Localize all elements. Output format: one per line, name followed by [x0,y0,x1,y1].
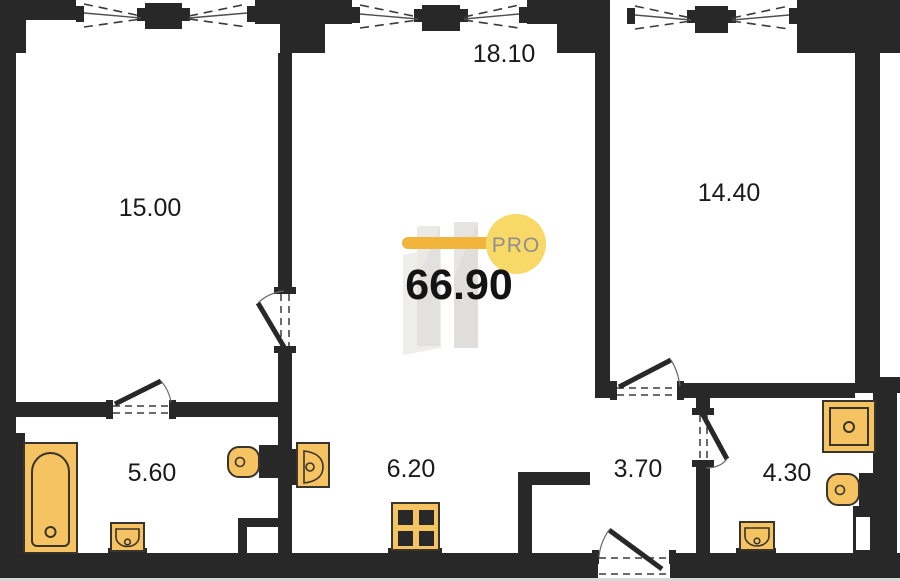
window-icon-middle [352,5,527,31]
wall-niche [856,517,870,550]
toilet-icon-bathroom-right [827,473,873,506]
door-swing-icon-room-right [610,360,684,400]
room-area-label: 4.30 [763,459,812,487]
room-area-label: 14.40 [698,179,761,207]
room-area-label: 5.60 [128,459,177,487]
room-area-label: 15.00 [119,194,182,222]
window-icon-left [76,3,255,29]
shower-icon [823,401,875,452]
toilet-icon-bathroom-left [228,445,278,478]
door-swing-icon-bathroom-left [106,381,176,419]
logo-pro-text: PRO [492,234,541,257]
total-area-label: 66.90 [405,261,513,309]
door-swing-icon-bathroom-right [692,408,727,468]
door-swing-icon-room-divider [258,287,296,353]
stove-icon [388,503,442,558]
washbasin-icon-bathroom-right [736,522,776,557]
floor-plan-drawing: PRO 66.90 [0,0,900,581]
floor-plan: PRO 66.90 [0,0,900,581]
bathtub-icon [24,443,77,553]
door-swing-icon-entrance [592,530,676,574]
washbasin-icon-bathroom-left [108,523,147,557]
room-area-label: 3.70 [614,455,663,483]
washbasin-icon-hallway [292,443,329,487]
room-area-label: 6.20 [387,455,436,483]
room-area-label: 18.10 [473,40,536,68]
window-icon-right [627,6,797,33]
